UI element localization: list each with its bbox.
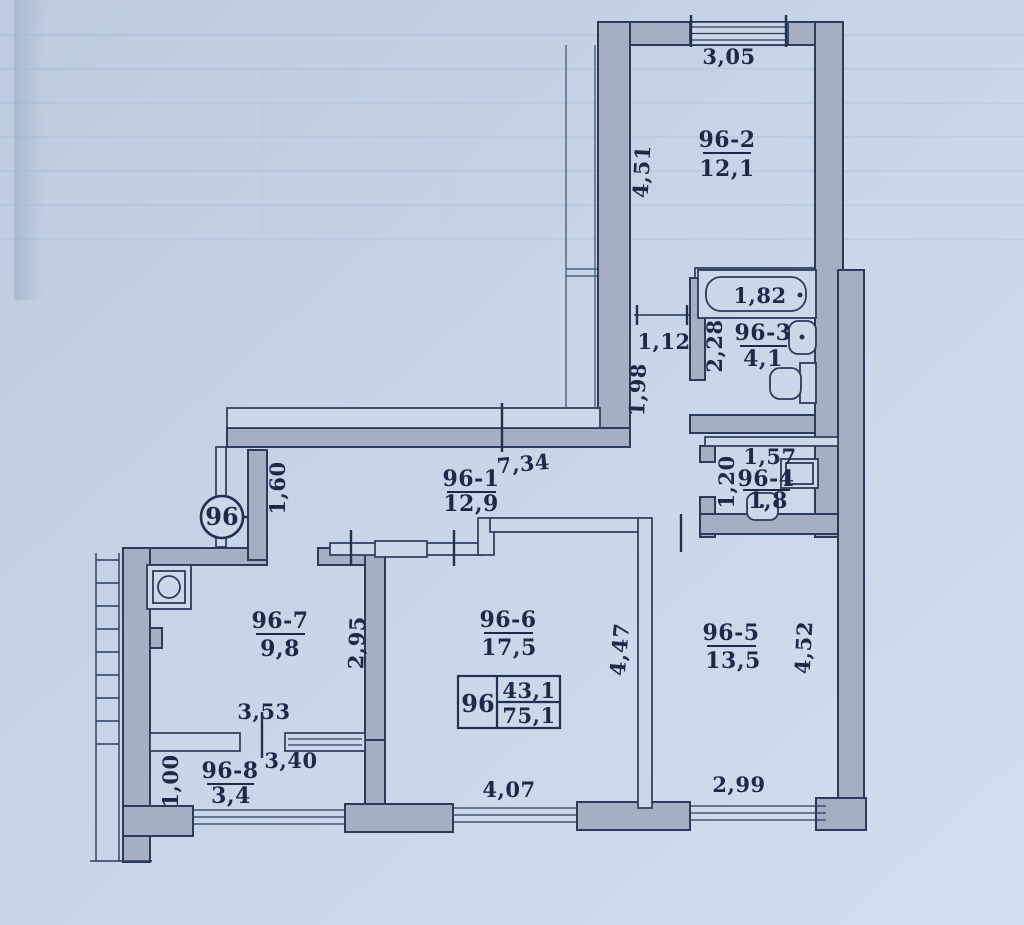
dim-1-98: 1,98 (624, 363, 651, 417)
room-area-96-3: 4,1 (743, 346, 783, 372)
dim-4-51: 4,51 (628, 144, 656, 198)
apartment-number: 96 (205, 502, 238, 531)
room-area-96-4: 1,8 (748, 488, 788, 514)
wall-bottom-pier-2 (577, 802, 690, 830)
bathtub-drain-dot (798, 293, 803, 298)
washbasin-dot (800, 335, 805, 340)
room-label-96-1: 96-1 (442, 466, 499, 492)
wall-bath-bottom (690, 415, 815, 433)
room-label-96-5: 96-5 (702, 620, 759, 646)
dim-1-12: 1,12 (637, 329, 690, 354)
dim-2-95: 2,95 (343, 616, 370, 670)
room-area-96-6: 17,5 (481, 635, 537, 661)
dim-1-57: 1,57 (743, 444, 796, 469)
room-label-96-8: 96-8 (201, 758, 258, 784)
summary-living-area: 43,1 (502, 678, 555, 703)
dim-4-52: 4,52 (790, 620, 818, 674)
dim-4-47: 4,47 (605, 622, 635, 677)
room-label-96-7: 96-7 (251, 608, 308, 634)
dim-1-20: 1,20 (714, 455, 739, 508)
wall-wc-left-a (700, 446, 715, 462)
wall-right-outer (838, 270, 864, 830)
room-area-96-8: 3,4 (211, 783, 251, 809)
floor-plan-page: 96 96 43,1 75,1 96-2 12,1 96-3 4,1 96-4 … (0, 0, 1024, 925)
wall-corridor-top (227, 428, 630, 447)
dim-1-00: 1,00 (158, 754, 183, 807)
wall-corridor-top-outer (227, 408, 600, 428)
dim-1-60: 1,60 (265, 461, 290, 514)
wall-living-room5-partition (638, 518, 652, 808)
wall-corridor-bottom-high (490, 518, 640, 532)
dim-4-07: 4,07 (482, 777, 535, 802)
dim-2-28: 2,28 (702, 319, 727, 372)
room-area-96-2: 12,1 (699, 156, 755, 182)
wall-bottom-left-corner (123, 806, 193, 836)
wall-bottom-pier-1 (345, 804, 453, 832)
room-area-96-1: 12,9 (443, 491, 499, 517)
toilet-bowl (770, 368, 801, 399)
floor-plan-drawing: 96 96 43,1 75,1 96-2 12,1 96-3 4,1 96-4 … (0, 0, 1024, 925)
page-fold-shadow (14, 0, 44, 300)
room-area-96-5: 13,5 (705, 648, 761, 674)
dim-3-05: 3,05 (702, 44, 755, 69)
dim-2-99: 2,99 (712, 772, 765, 797)
door-leaf-living (375, 541, 427, 557)
summary-total-area: 75,1 (502, 703, 555, 728)
wall-balcony-right-pillar (365, 740, 385, 810)
toilet-tank (800, 363, 816, 403)
wall-bottom-right-corner (816, 798, 866, 830)
dim-3-53: 3,53 (237, 699, 290, 724)
room-area-96-7: 9,8 (260, 636, 300, 662)
wall-kitchen-notch (150, 628, 162, 648)
dim-7-34: 7,34 (496, 449, 551, 479)
room-label-96-6: 96-6 (479, 607, 536, 633)
wall-kitchen-balcony-a (150, 733, 240, 751)
dim-3-40: 3,40 (264, 748, 317, 773)
summary-apartment-number: 96 (461, 689, 494, 718)
room-label-96-3: 96-3 (734, 320, 791, 346)
dim-1-82: 1,82 (733, 283, 786, 308)
room-label-96-2: 96-2 (698, 127, 755, 153)
